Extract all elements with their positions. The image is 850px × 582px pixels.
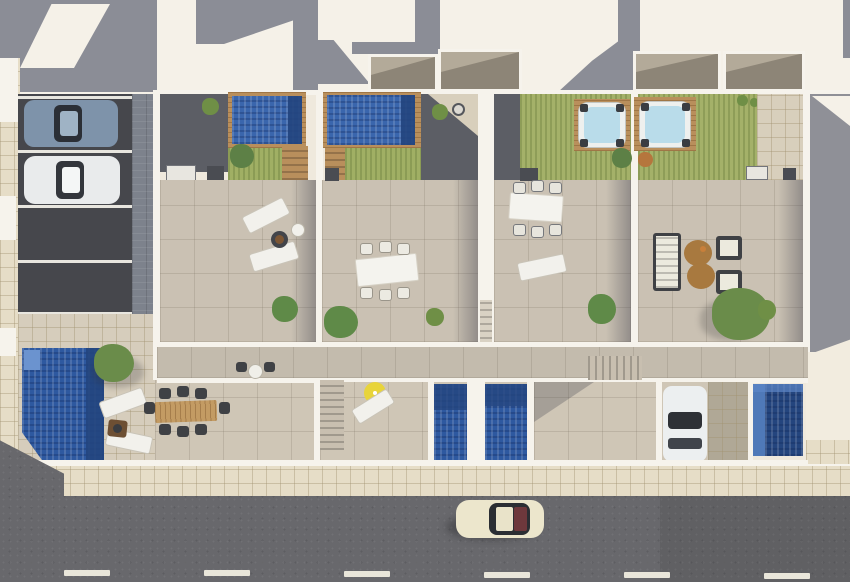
unit4-armchair-1-cushion	[720, 240, 738, 256]
unit4-orange-plant	[638, 152, 653, 167]
unit4-wall-shadow	[778, 180, 803, 342]
unit2-wall-shadow	[453, 180, 478, 342]
parked-car-white-roof	[62, 167, 80, 193]
lane-dash-4	[484, 572, 530, 578]
unit3-chair-1	[513, 182, 526, 194]
unit4-coffee-table-a	[684, 240, 712, 266]
unit4-tub-headrest-2	[682, 103, 690, 111]
unit3-chair-3	[549, 182, 562, 194]
road-shade-right	[660, 496, 850, 582]
unit2-chair-1	[360, 243, 373, 255]
unit1-tree	[230, 144, 254, 168]
unit2-pool-shadow	[401, 95, 415, 145]
wall-patio3-patio4	[527, 378, 534, 466]
parking-line-4	[18, 260, 132, 263]
walkway-palm-3	[588, 294, 616, 324]
patio1-chair-2	[177, 386, 189, 397]
lane-dash-3	[344, 571, 390, 577]
right-edge-plant	[758, 300, 776, 320]
unit2-storage-box	[325, 168, 339, 181]
lower-pool-right-edge	[753, 384, 803, 392]
roof-shaft-a	[293, 0, 318, 92]
lane-dash-6	[764, 573, 810, 579]
unit1-side-table	[291, 223, 305, 237]
unit2-chair-4	[360, 287, 373, 299]
unit4-hot-tub-water	[645, 106, 685, 143]
unit4-coffee-table-b	[687, 263, 715, 289]
unit3-chair-5	[531, 226, 544, 238]
right-roof-mass	[810, 94, 850, 352]
unit4-tub-headrest-1	[641, 103, 649, 111]
wall-unit1-left	[153, 90, 160, 380]
unit4-tub-headrest-4	[682, 139, 690, 147]
patio2-stairs	[320, 380, 344, 450]
patio1-chair-7	[144, 402, 155, 414]
unit1-storage-box	[207, 166, 224, 181]
street-car-rear-glass	[514, 507, 527, 531]
unit3-tub-headrest-2	[616, 104, 624, 112]
unit2-chair-5	[379, 289, 392, 301]
lower-pool-left-steps	[24, 350, 40, 370]
patio1-tree	[94, 344, 134, 382]
driveway-car-rear-glass	[668, 438, 702, 449]
wall-unit4-right	[803, 90, 810, 380]
lane-dash-1	[64, 570, 110, 576]
patio1-chair-6	[195, 424, 207, 435]
street-car-roof	[496, 507, 513, 531]
patio1-fire-pit-bowl	[113, 424, 122, 433]
patio1-chair-1	[159, 388, 171, 399]
unit3-tub-headrest-4	[616, 139, 624, 147]
unit2-plant	[432, 104, 448, 120]
unit4-sofa-cushions	[656, 236, 678, 288]
gap-stairs	[480, 300, 492, 346]
unit1-fire-bowl-ember	[275, 235, 284, 244]
parking-line-1	[18, 96, 132, 99]
parking-line-3	[18, 205, 132, 208]
unit1-dark-patio	[160, 94, 230, 172]
aerial-site-plan-render	[0, 0, 850, 582]
roof-shaft-d	[843, 0, 850, 58]
unit4-storage-box	[783, 168, 796, 180]
unit3-tub-headrest-3	[580, 139, 588, 147]
unit3-chair-6	[549, 224, 562, 236]
unit1-potted-plant	[202, 98, 219, 115]
driveway-car-windshield	[668, 412, 702, 429]
left-white-block-1	[0, 58, 18, 122]
patio1-dining-table	[155, 400, 218, 423]
unit2-bistro-table	[452, 103, 465, 116]
sidewalk	[0, 466, 850, 498]
wall-pool-a-b	[467, 378, 485, 466]
lane-dash-2	[204, 570, 250, 576]
walkway-palm-1	[272, 296, 298, 322]
unit4-tub-headrest-3	[641, 139, 649, 147]
unit1-pool-shadow	[288, 96, 302, 144]
unit3-chair-4	[513, 224, 526, 236]
unit4-table-decor	[700, 246, 706, 252]
unit3-tree	[612, 148, 632, 168]
unit3-dining-table	[508, 192, 564, 223]
patio4-stairs	[588, 356, 642, 380]
unit4-bbq-unit	[746, 166, 768, 180]
patio1-round-chair-2	[264, 362, 275, 372]
lower-pool-right-steps	[753, 384, 765, 456]
unit2-chair-3	[397, 243, 410, 255]
unit1-wood-steps	[282, 146, 308, 180]
unit2-grass	[345, 148, 421, 180]
lane-dash-5	[624, 572, 670, 578]
unit3-hot-tub-water	[584, 107, 620, 143]
parking-line-2	[18, 150, 132, 153]
unit2-chair-6	[397, 287, 410, 299]
unit2-chair-2	[379, 241, 392, 253]
patio3-pool-a-shadow	[434, 384, 467, 410]
roof-horizontal-band	[352, 42, 440, 54]
unit3-chair-2	[531, 180, 544, 192]
parked-car-blue-roof	[60, 111, 78, 136]
patio1-chair-3	[195, 388, 207, 399]
unit3-side-passage	[494, 94, 520, 180]
patio3-pool-b-shadow	[485, 384, 527, 406]
walkway-plant-small	[426, 308, 444, 326]
unit4-plant-small-1	[737, 95, 748, 106]
unit1-bbq-unit	[166, 165, 196, 181]
patio1-chair-8	[219, 402, 230, 414]
gray-paving	[708, 382, 750, 466]
walkway-palm-2	[324, 306, 358, 338]
patio1-chair-5	[177, 426, 189, 437]
patio1-chair-4	[159, 424, 171, 435]
patio1-round-chair-1	[236, 362, 247, 372]
unit3-tub-headrest-1	[580, 104, 588, 112]
left-white-block-3	[0, 328, 16, 356]
patio1-round-table	[248, 364, 263, 379]
left-white-block-2	[0, 196, 16, 240]
